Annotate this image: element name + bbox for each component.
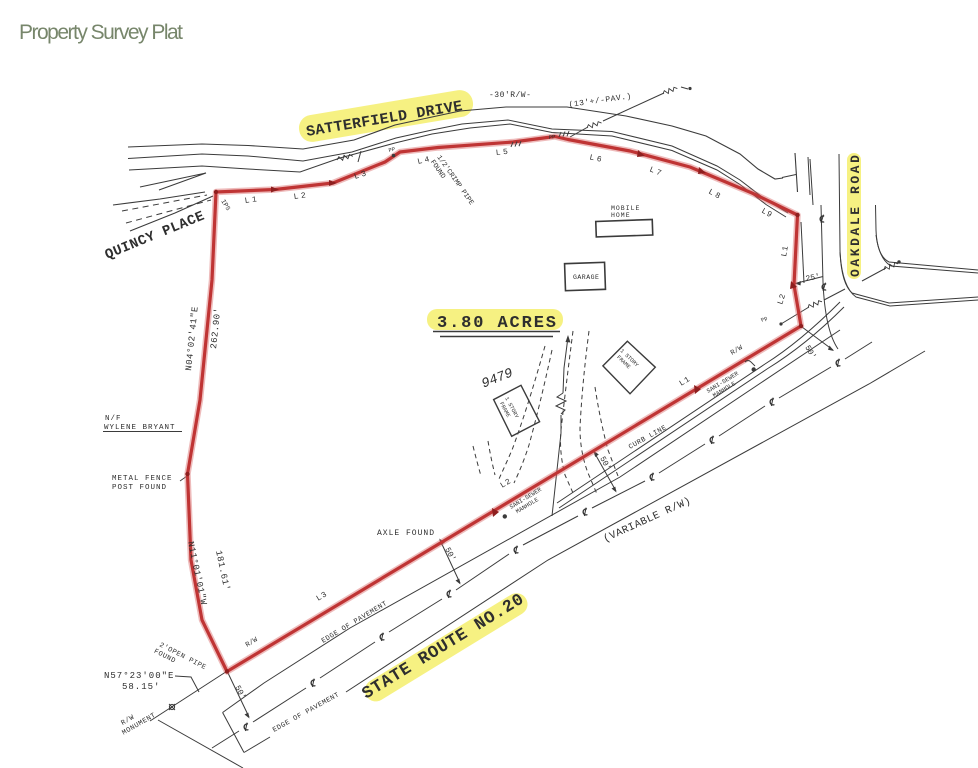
svg-text:3.80 ACRES: 3.80 ACRES xyxy=(437,314,557,333)
svg-text:METAL FENCE: METAL FENCE xyxy=(112,475,173,483)
svg-text:Property Survey Plat: Property Survey Plat xyxy=(19,21,183,44)
svg-text:PP: PP xyxy=(548,133,555,141)
svg-text:GARAGE: GARAGE xyxy=(573,274,599,281)
svg-text:58.15': 58.15' xyxy=(122,682,160,692)
svg-text:WYLENE BRYANT: WYLENE BRYANT xyxy=(104,424,176,432)
svg-text:AXLE FOUND: AXLE FOUND xyxy=(377,529,435,538)
svg-text:MOBILE: MOBILE xyxy=(611,205,640,212)
svg-text:HOME: HOME xyxy=(611,212,631,219)
svg-text:-30'R/W-: -30'R/W- xyxy=(489,91,531,100)
svg-text:N/F: N/F xyxy=(105,415,122,423)
svg-text:N57°23'00"E: N57°23'00"E xyxy=(104,671,174,681)
svg-text:L5: L5 xyxy=(495,148,510,158)
svg-text:POST FOUND: POST FOUND xyxy=(112,484,167,492)
